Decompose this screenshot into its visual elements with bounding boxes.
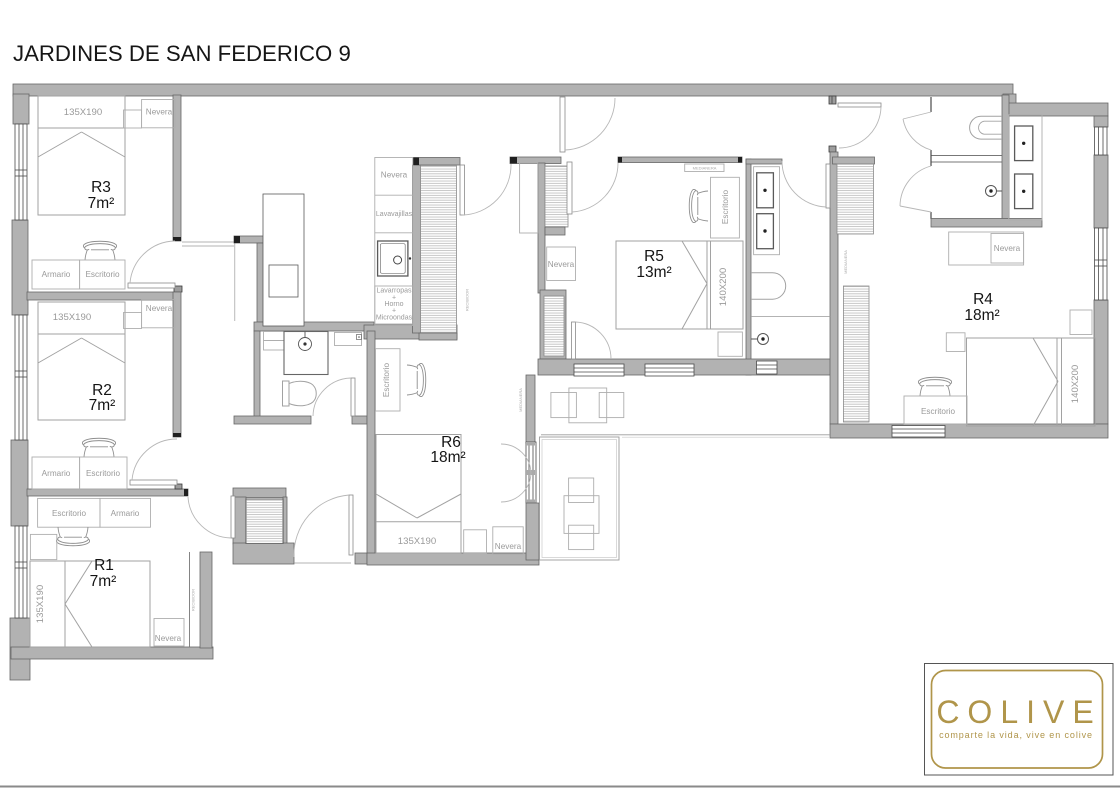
- svg-text:JARDINES DE SAN FEDERICO 9: JARDINES DE SAN FEDERICO 9: [13, 41, 351, 66]
- svg-text:18m²: 18m²: [964, 307, 999, 324]
- svg-text:MEDIANERA: MEDIANERA: [693, 166, 717, 171]
- svg-text:Armario: Armario: [111, 509, 140, 518]
- svg-text:Escritorio: Escritorio: [721, 189, 730, 224]
- svg-text:7m²: 7m²: [88, 195, 115, 212]
- svg-text:MEDIANERA: MEDIANERA: [843, 250, 848, 274]
- svg-text:135X190: 135X190: [398, 536, 436, 547]
- svg-text:7m²: 7m²: [89, 397, 116, 414]
- svg-text:Escritorio: Escritorio: [382, 362, 391, 397]
- svg-text:7m²: 7m²: [90, 573, 117, 590]
- svg-text:R1: R1: [94, 557, 114, 574]
- svg-text:COLIVE: COLIVE: [936, 694, 1101, 730]
- svg-text:Escritorio: Escritorio: [52, 509, 87, 518]
- svg-text:comparte la vida, vive en coli: comparte la vida, vive en colive: [939, 730, 1093, 740]
- svg-text:Lavavajillas: Lavavajillas: [376, 211, 413, 218]
- svg-text:Nevera: Nevera: [146, 304, 173, 313]
- svg-text:+: +: [392, 308, 396, 315]
- svg-text:Nevera: Nevera: [146, 108, 173, 117]
- svg-text:R5: R5: [644, 248, 664, 265]
- svg-text:Escritorio: Escritorio: [85, 270, 120, 279]
- svg-text:Microondas: Microondas: [376, 315, 413, 322]
- svg-text:Nevera: Nevera: [994, 244, 1021, 253]
- svg-text:R3: R3: [91, 179, 111, 196]
- svg-text:Lavarropas: Lavarropas: [376, 288, 412, 295]
- svg-text:RECIBIDOR: RECIBIDOR: [465, 289, 470, 311]
- svg-text:13m²: 13m²: [636, 264, 671, 281]
- svg-text:R4: R4: [973, 291, 993, 308]
- svg-text:MEDIANERA: MEDIANERA: [518, 388, 523, 412]
- svg-text:135X190: 135X190: [64, 107, 102, 118]
- svg-text:RECIBIDOR: RECIBIDOR: [191, 589, 196, 611]
- svg-text:Escritorio: Escritorio: [86, 469, 121, 478]
- svg-text:135X190: 135X190: [35, 585, 46, 623]
- svg-text:Nevera: Nevera: [155, 634, 182, 643]
- svg-text:140X200: 140X200: [718, 268, 729, 306]
- svg-text:135X190: 135X190: [53, 312, 91, 323]
- svg-text:Nevera: Nevera: [381, 171, 408, 180]
- svg-text:Nevera: Nevera: [495, 542, 522, 551]
- svg-text:Nevera: Nevera: [548, 260, 575, 269]
- svg-text:Armario: Armario: [42, 469, 71, 478]
- svg-text:140X200: 140X200: [1070, 365, 1081, 403]
- svg-text:Escritorio: Escritorio: [921, 407, 956, 416]
- svg-text:Armario: Armario: [42, 270, 71, 279]
- svg-text:18m²: 18m²: [430, 449, 465, 466]
